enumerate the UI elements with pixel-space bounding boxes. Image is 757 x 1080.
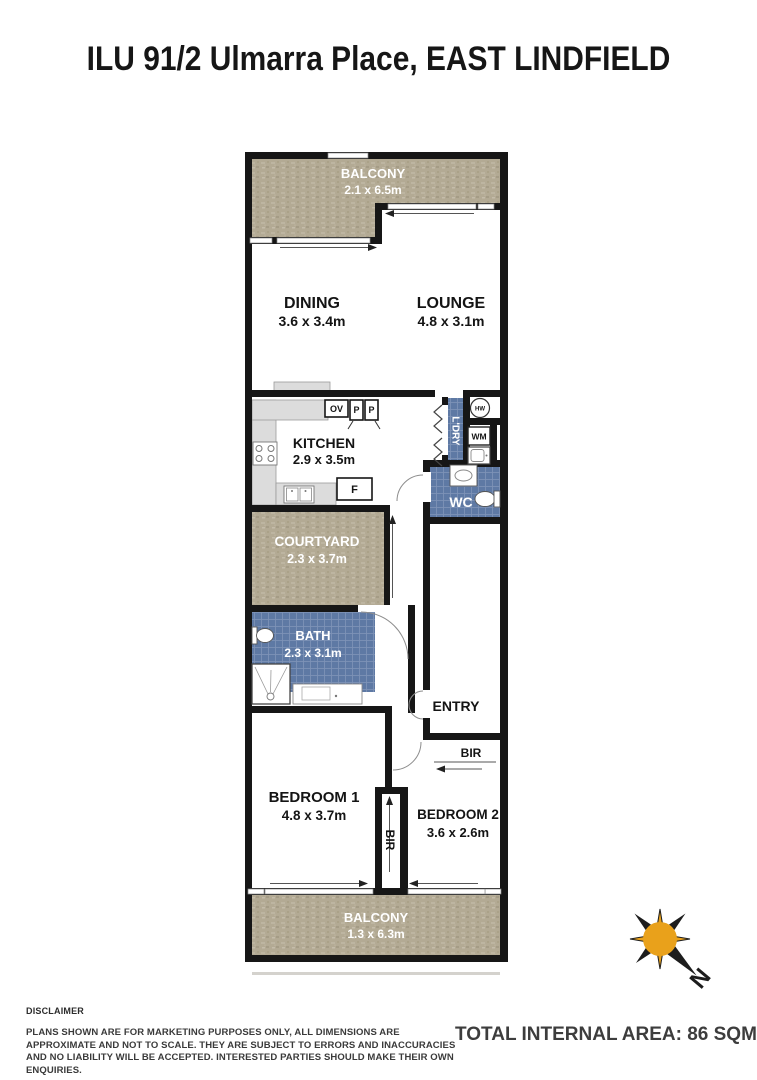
bifold-door-icon [434,405,442,433]
sliding-door-opening [277,238,370,243]
window [328,153,368,158]
wc-basin [450,465,477,486]
balcony-top-label: BALCONY [341,166,406,181]
laundry-tub [468,447,490,464]
pantry-label: P [368,405,374,415]
entry-label: ENTRY [433,698,481,714]
wall [245,706,392,713]
wall [375,787,382,895]
wall [500,152,508,962]
disclaimer-block: DISCLAIMER PLANS SHOWN ARE FOR MARKETING… [26,1006,456,1078]
washing-machine-label: WM [471,432,486,442]
disclaimer-title: DISCLAIMER [26,1006,456,1016]
door-opening [435,391,463,396]
wall [245,955,508,962]
bir-bedroom2-label: BIR [461,746,482,760]
wall [245,152,252,962]
wall [385,706,392,791]
wall [384,512,390,605]
compass-icon: N [608,893,728,1013]
bedroom1-door-arc [393,742,421,770]
wall [400,787,408,895]
wc-door-arc [397,475,423,501]
floorplan: BALCONY 2.1 x 6.5m DINING 3.6 x 3.4m LOU… [240,150,512,985]
shower [252,664,290,704]
wall [245,605,358,612]
bifold-doors [434,405,442,466]
bedroom1-dims: 4.8 x 3.7m [282,808,347,823]
bedroom2-dims: 3.6 x 2.6m [427,825,489,840]
floorplan-drawing: BALCONY 2.1 x 6.5m DINING 3.6 x 3.4m LOU… [240,150,512,980]
balcony-top-dims: 2.1 x 6.5m [344,183,401,197]
wall [470,418,500,425]
door-opening [422,690,431,718]
door-opening [358,606,408,611]
window [250,238,272,243]
arrow-right-icon [368,244,377,251]
wall [423,733,508,740]
kitchen-label: KITCHEN [293,435,355,451]
door-swing-mark [375,421,380,429]
wc-toilet [475,491,500,507]
bath-vanity [293,684,362,704]
bedroom1-label: BEDROOM 1 [269,789,360,806]
courtyard-dims: 2.3 x 3.7m [287,552,347,566]
oven-label: OV [330,404,343,414]
sliding-window-opening [265,889,373,894]
arrow-up-icon [386,796,393,805]
window [478,204,494,209]
ground-shadow-line [252,972,500,975]
balcony-bottom-label: BALCONY [344,910,409,925]
wall [423,460,430,472]
lounge-dims: 4.8 x 3.1m [418,313,485,329]
kitchen-sink [284,486,314,503]
wall [442,397,448,405]
total-internal-area: TOTAL INTERNAL AREA: 86 SQM [455,1024,745,1046]
arrow-left-icon [385,210,394,217]
compass-rose: N [608,893,728,1018]
sliding-door-opening [388,204,476,209]
kitchen-peninsula [274,382,330,391]
wall [423,517,500,524]
balcony-bottom-dims: 1.3 x 6.3m [347,927,404,941]
bir-middle-label: BIR [383,830,397,851]
window [485,889,501,894]
window [248,889,264,894]
laundry-label: L'DRY [450,416,461,446]
pantry-label: P [353,405,359,415]
dining-dims: 3.6 x 3.4m [279,313,346,329]
balcony-top-floor-left [252,203,375,239]
arrow-up-icon [389,515,396,524]
fridge-label: F [351,484,358,496]
arrow-right-icon [359,880,368,887]
kitchen-bench-top [252,400,328,420]
dining-label: DINING [284,295,340,312]
bath-label: BATH [295,628,330,643]
disclaimer-text: PLANS SHOWN ARE FOR MARKETING PURPOSES O… [26,1027,456,1078]
wall [463,390,508,397]
hot-water-label: HW [475,407,485,413]
arrow-left-icon [436,766,445,773]
balcony-bottom-area [252,895,500,955]
sliding-window-opening [408,889,485,894]
page-title: ILU 91/2 Ulmarra Place, EAST LINDFIELD [45,40,711,79]
wc-label: WC [449,494,472,510]
cooktop [253,442,277,465]
compass-disc [643,922,677,956]
lounge-label: LOUNGE [417,295,486,312]
door-swing-mark [348,421,353,429]
wall [423,502,430,690]
wall [245,505,390,512]
door-opening [422,472,431,502]
wall [245,152,508,159]
arrow-left-icon [409,880,418,887]
bedroom2-label: BEDROOM 2 [417,807,499,822]
kitchen-dims: 2.9 x 3.5m [293,452,355,467]
bath-dims: 2.3 x 3.1m [284,646,341,660]
courtyard-label: COURTYARD [274,534,359,549]
wall [245,390,435,397]
bath-toilet [252,627,274,644]
